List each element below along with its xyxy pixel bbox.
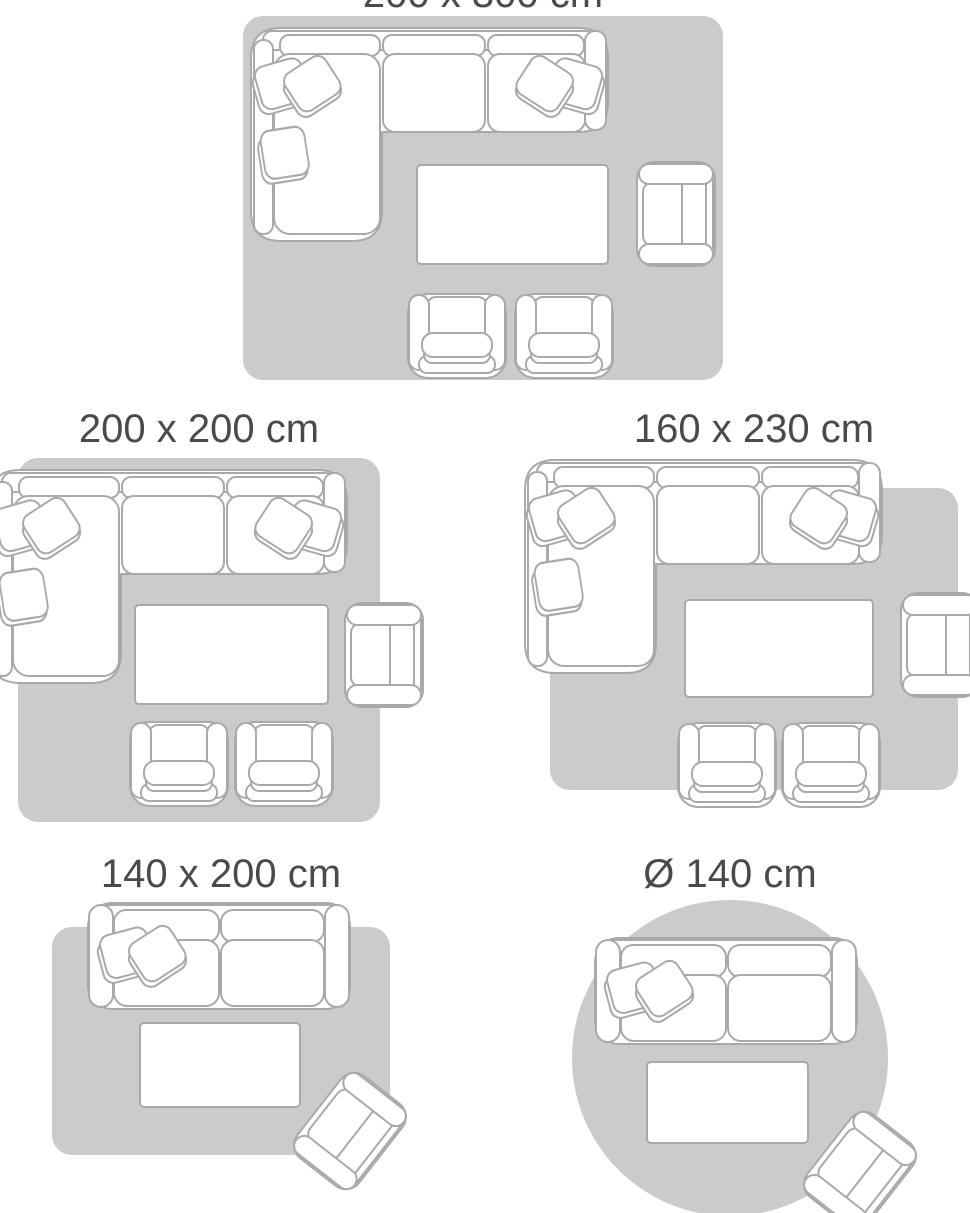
armchair-front-icon bbox=[678, 723, 776, 807]
coffee-table-icon bbox=[685, 600, 873, 697]
coffee-table-icon bbox=[135, 605, 328, 704]
size-label-140-round: Ø 140 cm bbox=[570, 854, 890, 894]
size-label-140x200: 140 x 200 cm bbox=[52, 854, 390, 894]
size-label-200x200: 200 x 200 cm bbox=[18, 409, 380, 449]
armchair-front-icon bbox=[408, 294, 506, 378]
layout-160x230 bbox=[523, 460, 970, 807]
layout-200x200 bbox=[0, 458, 423, 822]
two-seat-sofa-icon bbox=[88, 903, 350, 1009]
size-label-200x300: 200 x 300 cm bbox=[243, 0, 723, 14]
coffee-table-icon bbox=[140, 1023, 300, 1107]
coffee-table-icon bbox=[417, 165, 608, 264]
armchair-front-icon bbox=[235, 722, 333, 806]
layout-140-round bbox=[572, 900, 923, 1213]
layout-200x300 bbox=[243, 16, 723, 380]
armchair-front-icon bbox=[782, 723, 880, 807]
armchair-front-icon bbox=[130, 722, 228, 806]
two-seat-sofa-icon bbox=[595, 938, 857, 1044]
coffee-table-icon bbox=[647, 1062, 808, 1143]
armchair-side-icon bbox=[637, 162, 715, 266]
armchair-front-icon bbox=[515, 294, 613, 378]
rug-size-guide: 200 x 300 cm 200 x 200 cm 160 x 230 cm 1… bbox=[0, 0, 970, 1213]
armchair-side-icon bbox=[901, 593, 970, 697]
armchair-side-icon bbox=[345, 603, 423, 707]
size-label-160x230: 160 x 230 cm bbox=[550, 409, 958, 449]
layout-140x200 bbox=[52, 903, 413, 1196]
size-guide-illustration bbox=[0, 0, 970, 1213]
